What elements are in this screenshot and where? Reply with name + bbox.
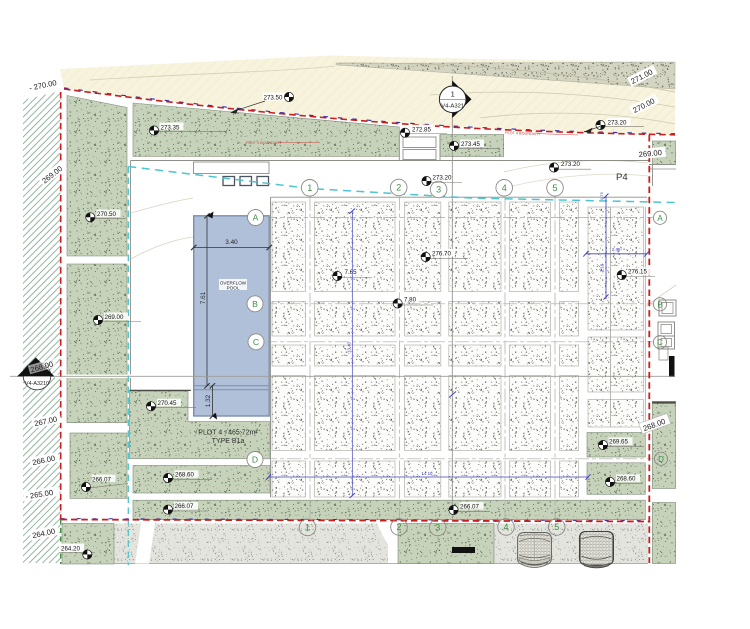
svg-text:1: 1 (451, 90, 455, 99)
svg-text:V4-A321: V4-A321 (441, 104, 464, 110)
svg-text:TYPE B1a: TYPE B1a (212, 438, 245, 445)
svg-text:C: C (253, 337, 259, 347)
svg-text:273.20: 273.20 (608, 120, 627, 127)
svg-text:2: 2 (396, 183, 401, 193)
svg-text:3.40: 3.40 (225, 239, 238, 246)
svg-text:270.50: 270.50 (97, 211, 116, 218)
svg-text:2.45: 2.45 (612, 247, 621, 252)
svg-text:3.18: 3.18 (600, 263, 605, 272)
svg-text:P4: P4 (616, 172, 628, 183)
svg-text:7.65: 7.65 (345, 269, 358, 276)
svg-text:PLOT 4 : 465.72m²: PLOT 4 : 465.72m² (198, 430, 258, 437)
svg-text:273.50: 273.50 (264, 95, 283, 102)
svg-text:4: 4 (503, 522, 508, 532)
svg-text:273.20: 273.20 (433, 174, 452, 181)
svg-text:3: 3 (435, 523, 440, 533)
svg-text:B: B (252, 299, 258, 309)
svg-text:13.40: 13.40 (347, 341, 352, 353)
svg-text:272.85: 272.85 (412, 126, 431, 133)
svg-text:3: 3 (436, 185, 441, 195)
svg-text:4: 4 (502, 183, 507, 193)
svg-text:269.65: 269.65 (609, 439, 628, 446)
svg-text:1: 1 (305, 523, 310, 533)
svg-text:PLOT 4 BOUNDARY: PLOT 4 BOUNDARY (246, 141, 282, 145)
svg-text:7.80: 7.80 (404, 297, 417, 304)
svg-text:D: D (658, 455, 664, 464)
svg-text:1.32: 1.32 (205, 394, 212, 407)
svg-text:273.20: 273.20 (561, 161, 580, 168)
svg-text:268.60: 268.60 (617, 476, 636, 483)
svg-text:276.70: 276.70 (432, 251, 451, 258)
svg-text:A: A (657, 214, 663, 223)
svg-text:270.45: 270.45 (158, 400, 177, 407)
svg-text:B: B (657, 300, 662, 309)
svg-text:14 10: 14 10 (422, 471, 434, 476)
svg-text:V4-A3210: V4-A3210 (25, 381, 49, 387)
svg-text:269.00: 269.00 (105, 314, 124, 321)
svg-text:C: C (657, 338, 663, 347)
svg-text:5: 5 (552, 183, 557, 193)
svg-text:A: A (253, 213, 259, 223)
svg-text:2: 2 (396, 522, 401, 532)
svg-text:266.07: 266.07 (460, 503, 479, 510)
svg-text:266.07: 266.07 (175, 503, 194, 510)
svg-text:264.20: 264.20 (61, 546, 80, 553)
svg-text:5: 5 (554, 522, 559, 532)
svg-text:276.15: 276.15 (628, 269, 647, 276)
svg-text:7.61: 7.61 (200, 291, 207, 304)
svg-text:268.60: 268.60 (175, 472, 194, 479)
svg-text:266.07: 266.07 (92, 476, 111, 483)
svg-text:POOL: POOL (227, 285, 240, 290)
svg-text:D: D (252, 455, 258, 465)
svg-text:273.35: 273.35 (161, 124, 180, 131)
svg-text:273.45: 273.45 (461, 141, 480, 148)
svg-text:1: 1 (307, 183, 312, 193)
svg-text:0.75: 0.75 (599, 191, 604, 200)
